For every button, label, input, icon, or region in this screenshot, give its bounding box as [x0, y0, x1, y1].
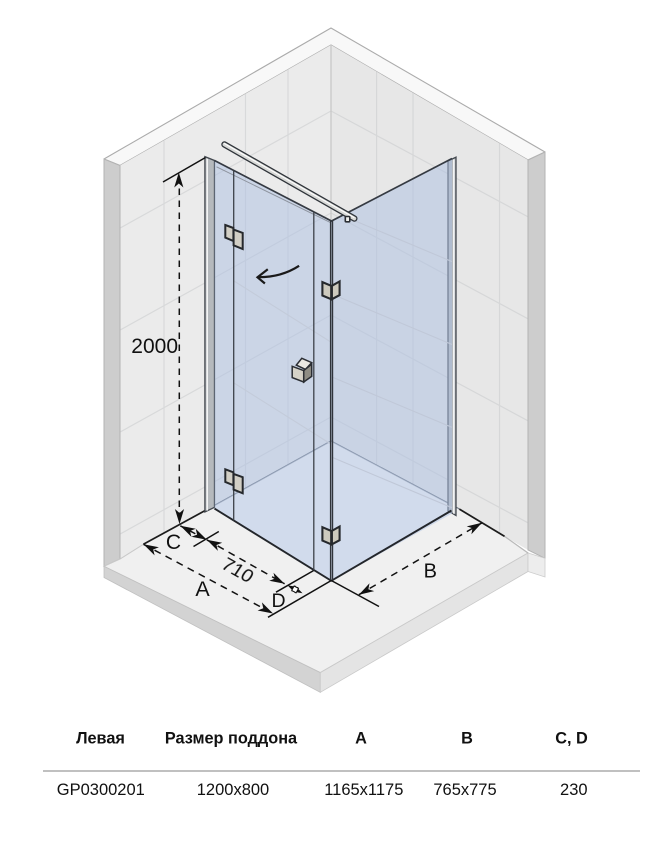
svg-text:230: 230: [560, 781, 588, 799]
svg-text:765x775: 765x775: [433, 781, 496, 799]
svg-text:GP0300201: GP0300201: [57, 781, 145, 799]
svg-text:1200x800: 1200x800: [197, 781, 270, 799]
svg-text:D: D: [271, 590, 285, 612]
svg-text:B: B: [424, 561, 437, 583]
svg-text:2000: 2000: [131, 335, 178, 358]
svg-text:C, D: C, D: [555, 730, 588, 748]
svg-text:A: A: [355, 730, 367, 748]
svg-text:1165x1175: 1165x1175: [324, 781, 403, 799]
svg-text:A: A: [195, 577, 210, 601]
svg-text:B: B: [461, 730, 473, 748]
svg-text:Левая: Левая: [76, 730, 125, 748]
svg-text:Размер поддона: Размер поддона: [165, 730, 298, 748]
svg-text:C: C: [166, 531, 181, 554]
